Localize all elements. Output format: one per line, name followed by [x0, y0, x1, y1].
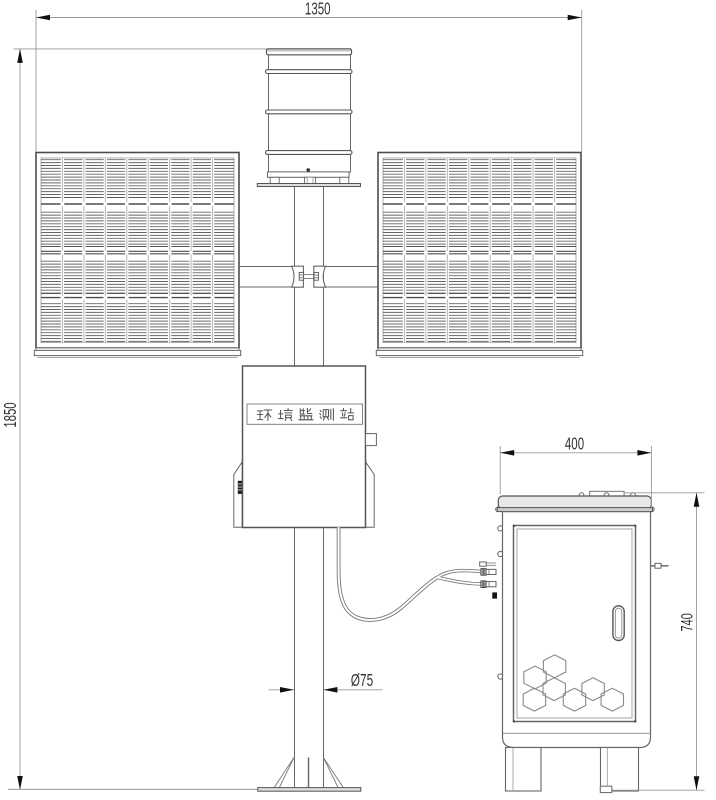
svg-text:740: 740 [678, 613, 697, 632]
svg-text:1350: 1350 [305, 0, 331, 19]
svg-text:Ø75: Ø75 [351, 670, 373, 690]
svg-text:400: 400 [565, 435, 584, 454]
svg-text:1850: 1850 [2, 402, 21, 427]
